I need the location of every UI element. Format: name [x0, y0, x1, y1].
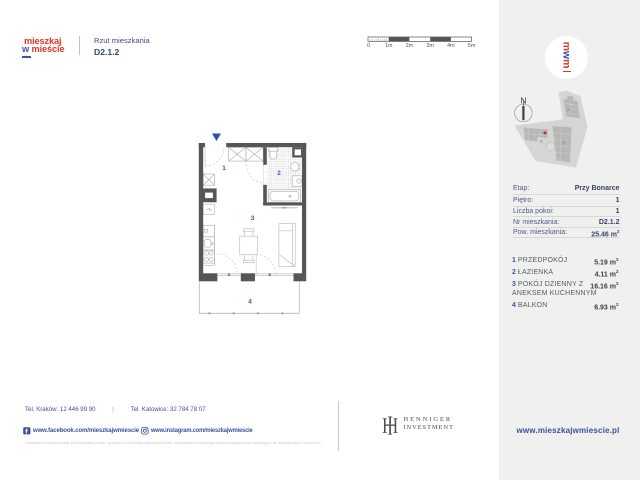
svg-text:1: 1	[222, 165, 226, 172]
svg-text:2m: 2m	[406, 43, 414, 49]
svg-text:B: B	[567, 108, 570, 112]
svg-text:1m: 1m	[385, 43, 393, 49]
svg-text:D: D	[540, 140, 543, 144]
svg-text:3: 3	[251, 215, 255, 222]
svg-text:4m: 4m	[447, 43, 455, 49]
svg-text:4: 4	[248, 299, 252, 306]
svg-text:5m: 5m	[468, 43, 476, 49]
svg-text:0: 0	[367, 43, 370, 49]
svg-text:3m: 3m	[426, 43, 434, 49]
svg-text:C: C	[563, 141, 566, 145]
svg-text:2: 2	[277, 170, 281, 177]
